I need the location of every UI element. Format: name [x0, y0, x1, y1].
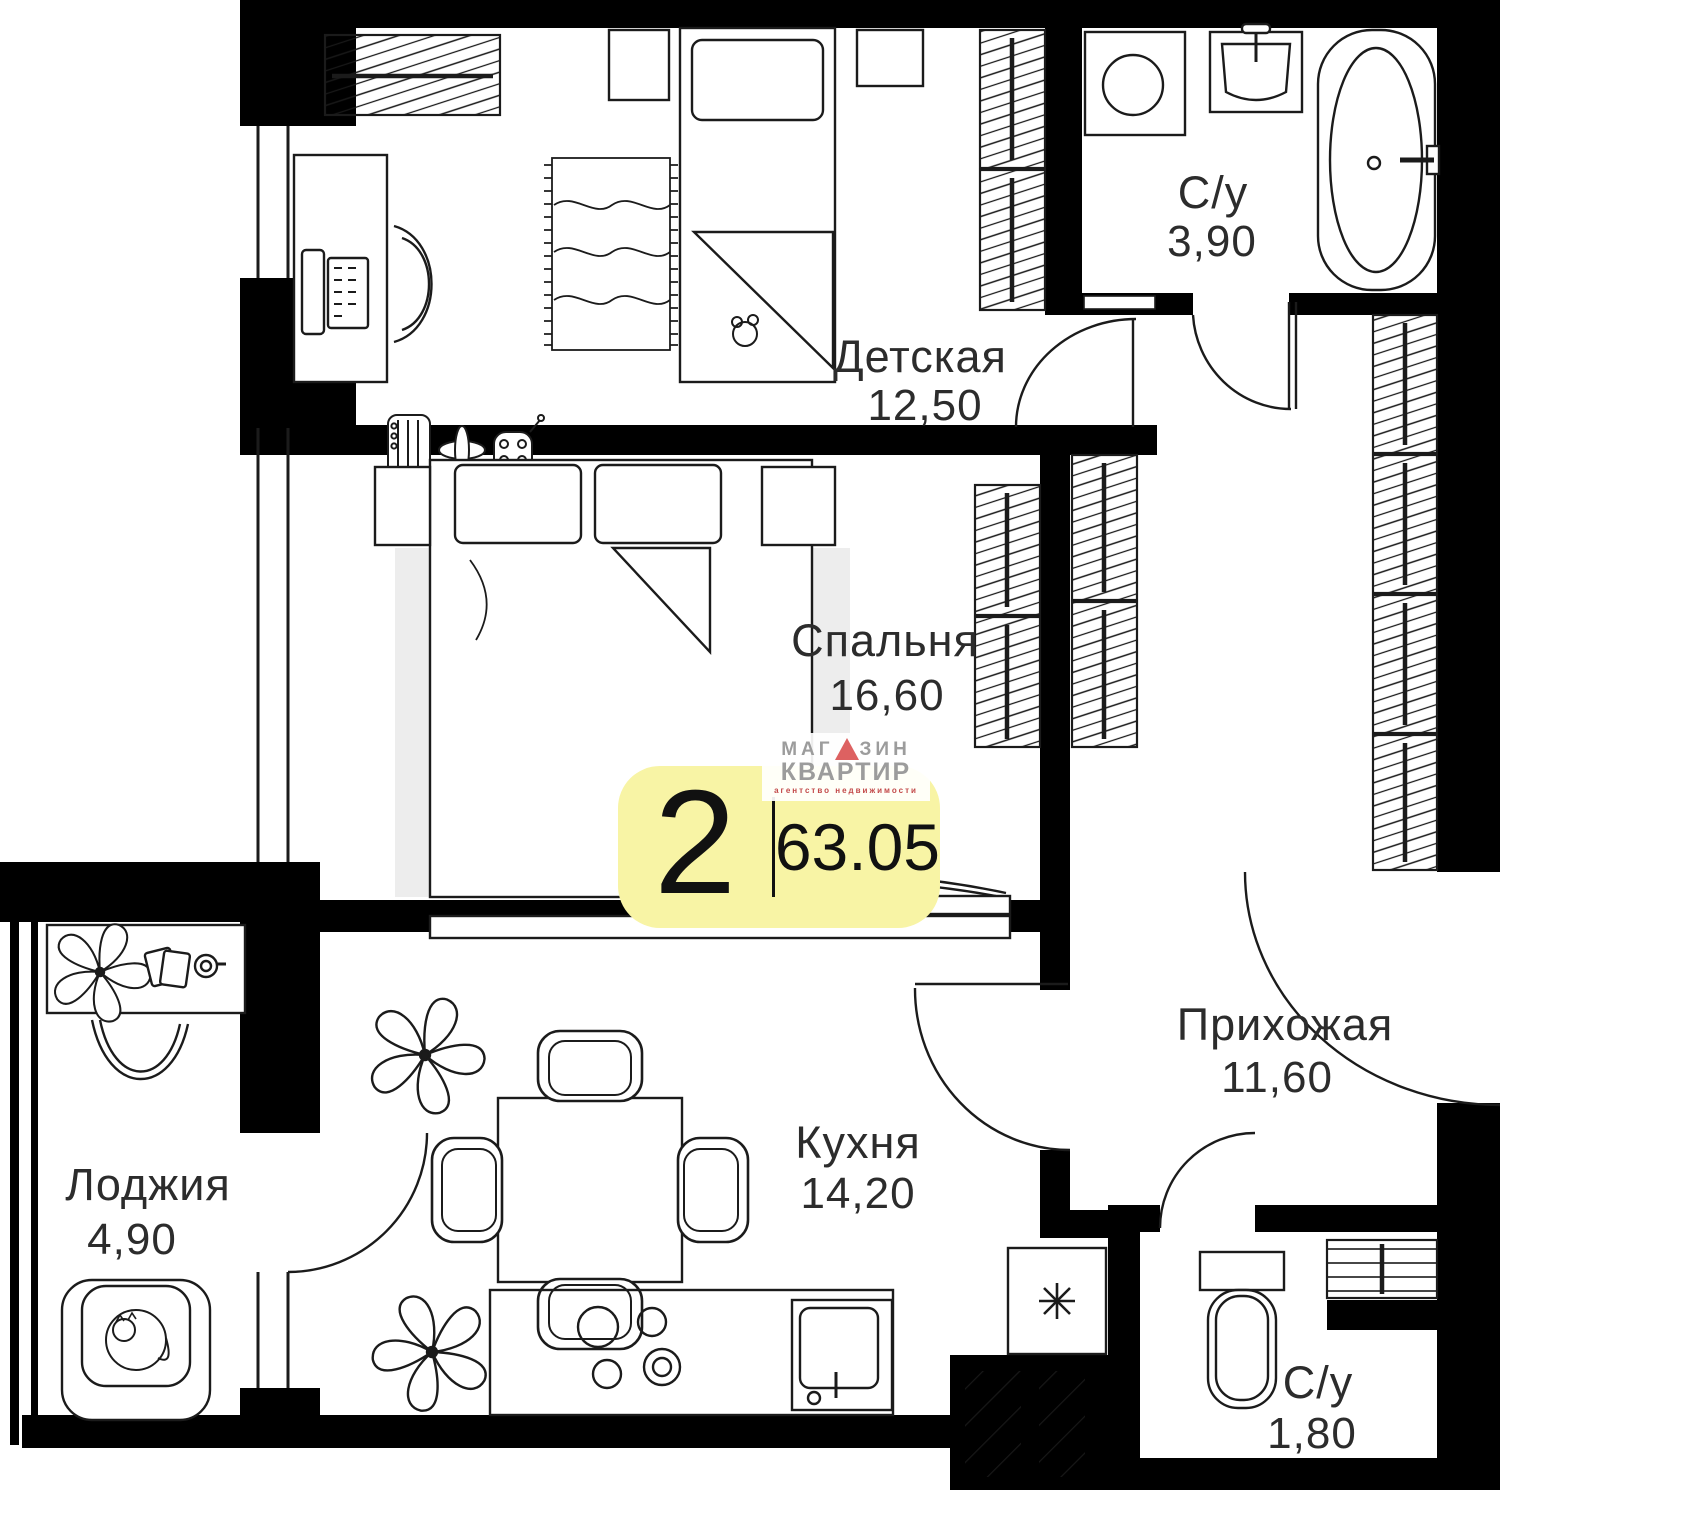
svg-text:16,60: 16,60	[829, 671, 944, 720]
dining-table	[498, 1098, 682, 1282]
nightstand-left	[375, 467, 430, 545]
svg-text:1,80: 1,80	[1267, 1409, 1357, 1458]
wardrobe-childrens-column	[980, 30, 1045, 310]
rug	[544, 158, 678, 350]
logo-triangle-icon	[835, 738, 859, 760]
logo-word2: КВАРТИР	[781, 759, 911, 785]
svg-text:11,60: 11,60	[1221, 1053, 1333, 1102]
wardrobe-hallway-east	[1373, 315, 1437, 870]
agency-logo: МАГ ЗИН КВАРТИР агентство недвижимости	[762, 733, 930, 801]
refrigerator	[1008, 1248, 1106, 1354]
logo-tagline: агентство недвижимости	[774, 785, 918, 796]
shelf-box	[857, 30, 923, 86]
rooms-count: 2	[618, 769, 772, 917]
wardrobe-hall-closet	[1327, 1240, 1437, 1298]
svg-text:С/у: С/у	[1283, 1357, 1354, 1408]
plant	[353, 1274, 516, 1438]
room-bathroom-furniture	[1085, 24, 1439, 290]
sink	[1210, 24, 1302, 112]
svg-text:Спальня: Спальня	[791, 615, 979, 666]
door-bathroom	[1193, 302, 1296, 409]
svg-text:Лоджия: Лоджия	[65, 1159, 230, 1210]
door-loggia	[288, 1133, 427, 1272]
books	[144, 947, 190, 987]
wardrobe-childrens-top	[325, 35, 500, 115]
room-loggia-label: Лоджия 4,90	[65, 1159, 230, 1264]
total-area: 63.05	[775, 809, 940, 885]
logo-word1-prefix: МАГ	[781, 740, 833, 759]
door-kitchen	[915, 984, 1070, 1150]
threshold	[1084, 296, 1155, 309]
washing-machine	[1085, 32, 1185, 135]
window-kitchen	[258, 1272, 288, 1388]
toilet	[1200, 1252, 1284, 1408]
fridge-star	[1039, 1283, 1075, 1319]
room-hallway-label: Прихожая 11,60	[1177, 999, 1394, 1102]
door-small-bathroom	[1160, 1133, 1255, 1228]
logo-word1-suffix: ЗИН	[860, 740, 911, 759]
nightstand	[609, 30, 669, 100]
svg-text:Детская: Детская	[833, 331, 1007, 382]
floor-plan: Детская 12,50 Спальня 16,60 С/у 3,90 При…	[0, 0, 1686, 1532]
svg-text:3,90: 3,90	[1167, 217, 1257, 266]
window-childrens	[258, 126, 288, 278]
desk-chair	[394, 226, 432, 342]
nightstand-right	[762, 467, 835, 545]
room-kitchen-label: Кухня 14,20	[795, 1117, 920, 1218]
rug-fringe	[544, 165, 678, 345]
chair-right	[678, 1138, 748, 1242]
wardrobe-hallway-west	[1072, 455, 1137, 747]
logo-word1: МАГ ЗИН	[781, 738, 911, 759]
svg-text:Прихожая: Прихожая	[1177, 999, 1394, 1050]
room-small-bathroom-label: С/у 1,80	[1267, 1357, 1357, 1458]
chair-left	[432, 1138, 502, 1242]
svg-text:Кухня: Кухня	[795, 1117, 920, 1168]
svg-text:С/у: С/у	[1178, 167, 1249, 218]
armchair-with-cat	[62, 1280, 210, 1420]
single-bed	[680, 28, 835, 382]
door-childrens	[1016, 319, 1136, 427]
bathtub	[1318, 30, 1439, 290]
room-bathroom-label: С/у 3,90	[1167, 167, 1257, 266]
kitchen-sink	[792, 1300, 892, 1410]
window-bedroom	[258, 428, 288, 862]
svg-text:4,90: 4,90	[87, 1215, 177, 1264]
desk-with-laptop	[294, 155, 387, 382]
svg-text:14,20: 14,20	[800, 1169, 915, 1218]
wardrobe-bedroom	[975, 485, 1040, 747]
loggia-chair	[92, 1020, 188, 1079]
pillow-left	[455, 465, 581, 543]
room-childrens-label: Детская 12,50	[833, 331, 1007, 430]
pillow-right	[595, 465, 721, 543]
chair-top	[538, 1031, 642, 1101]
plant	[368, 995, 490, 1119]
svg-text:12,50: 12,50	[867, 381, 982, 430]
room-small-bathroom-furniture	[1200, 1252, 1284, 1408]
